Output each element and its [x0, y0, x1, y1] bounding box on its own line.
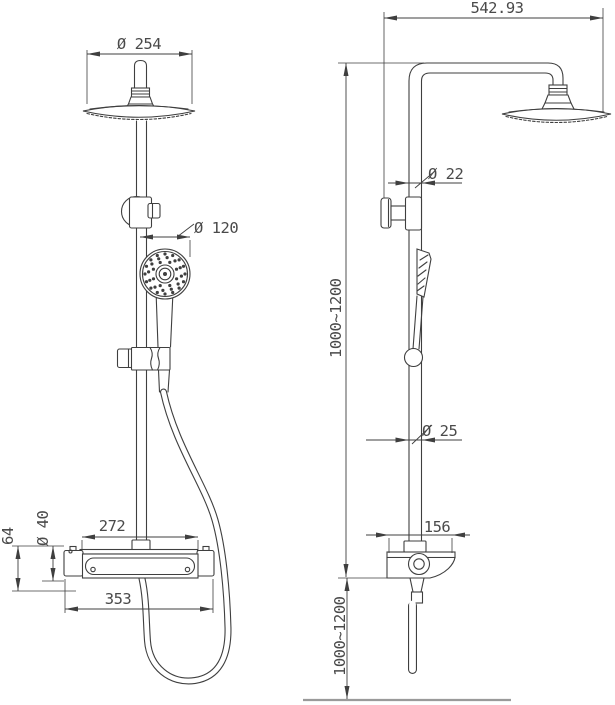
dim-valve-inlet-spacing: 272 [99, 517, 126, 535]
dim-upper-height-range: 1000~1200 [327, 278, 345, 358]
overhead-disc-side [502, 109, 611, 121]
valve-knob-side [409, 554, 430, 575]
dim-lower-pipe-diameter: Ø 25 [422, 422, 457, 440]
front-view: Ø 254 Ø 120 272 353 64 Ø 40 [0, 35, 238, 681]
side-view: 542.93 1000~1200 1000~1200 Ø 22 Ø 25 156 [303, 0, 611, 700]
hand-shower-holder-front [118, 348, 171, 371]
dim-lower-height-range: 1000~1200 [331, 596, 349, 676]
riser-pipe-front [137, 121, 147, 549]
dim-upper-pipe-diameter: Ø 22 [428, 165, 463, 183]
mixer-valve-front [64, 540, 214, 578]
dim-valve-body-diameter: Ø 40 [34, 511, 52, 546]
holder-ring-side [405, 349, 423, 367]
dim-overhead-diameter: Ø 254 [117, 35, 161, 53]
dim-arm-projection: 542.93 [471, 0, 524, 17]
shower-hose-front [142, 392, 228, 681]
shower-system-drawing: Ø 254 Ø 120 272 353 64 Ø 40 [0, 0, 615, 705]
front-dimensions: Ø 254 Ø 120 272 353 64 Ø 40 [0, 35, 238, 613]
technical-drawing-sheet: Ø 254 Ø 120 272 353 64 Ø 40 [0, 0, 615, 705]
wall-bracket-side [381, 197, 422, 230]
side-dimensions: 542.93 1000~1200 1000~1200 Ø 22 Ø 25 156 [327, 0, 603, 699]
slider-bracket-front [122, 197, 161, 229]
dim-handshower-diameter: Ø 120 [194, 219, 238, 237]
dim-valve-overall-width: 353 [105, 590, 132, 608]
overhead-shower-side [502, 85, 611, 123]
overhead-shower-front [83, 61, 195, 120]
overhead-disc-front [83, 106, 195, 118]
dim-shelf-depth: 156 [424, 518, 451, 536]
dim-valve-height: 64 [0, 527, 17, 545]
riser-pipe-and-arm-side [409, 63, 563, 546]
shelf-valve-side [387, 541, 455, 603]
